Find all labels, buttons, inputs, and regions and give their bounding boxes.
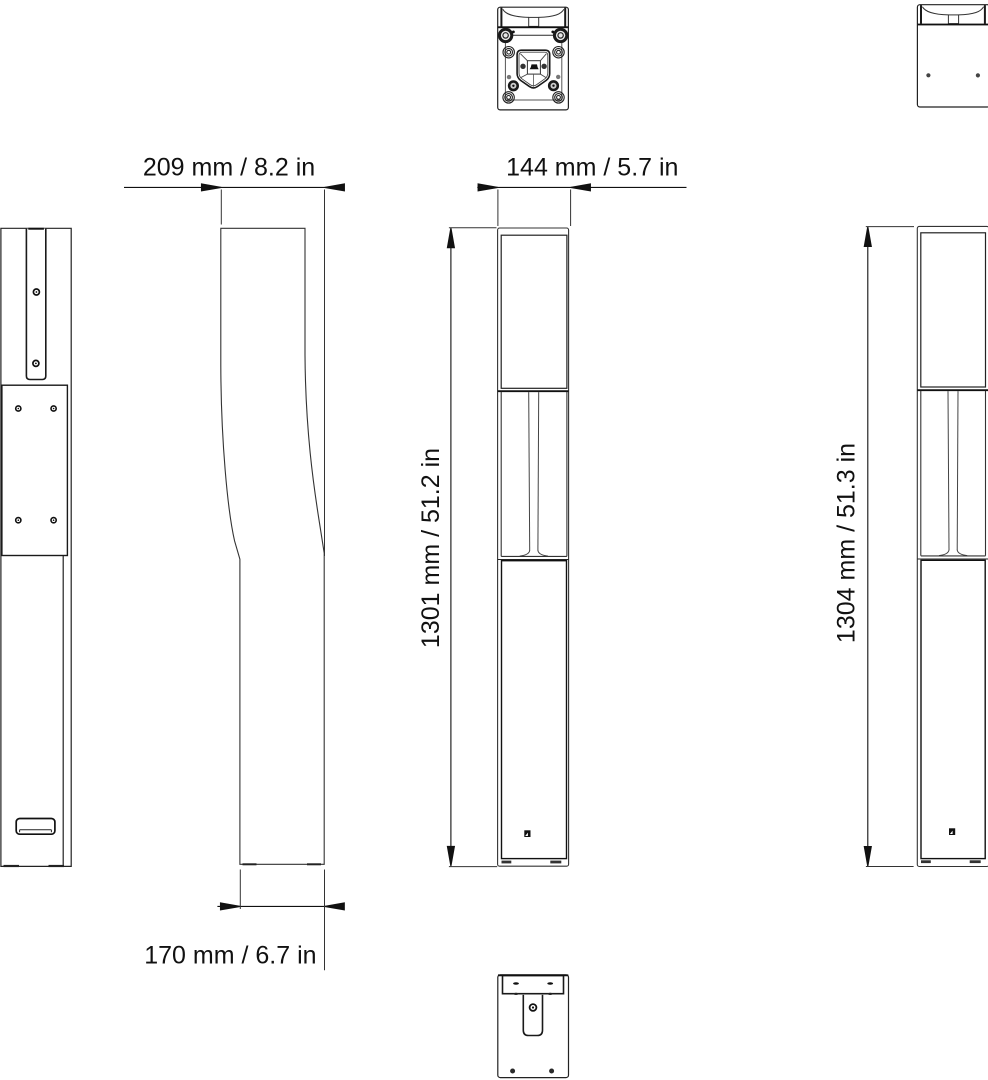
svg-text:144 mm / 5.7 in: 144 mm / 5.7 in [506, 154, 678, 182]
svg-text:1304 mm / 51.3 in: 1304 mm / 51.3 in [833, 443, 861, 643]
svg-text:209 mm / 8.2 in: 209 mm / 8.2 in [143, 154, 315, 182]
svg-text:170 mm / 6.7 in: 170 mm / 6.7 in [144, 942, 316, 970]
svg-text:1301 mm / 51.2 in: 1301 mm / 51.2 in [417, 448, 445, 648]
